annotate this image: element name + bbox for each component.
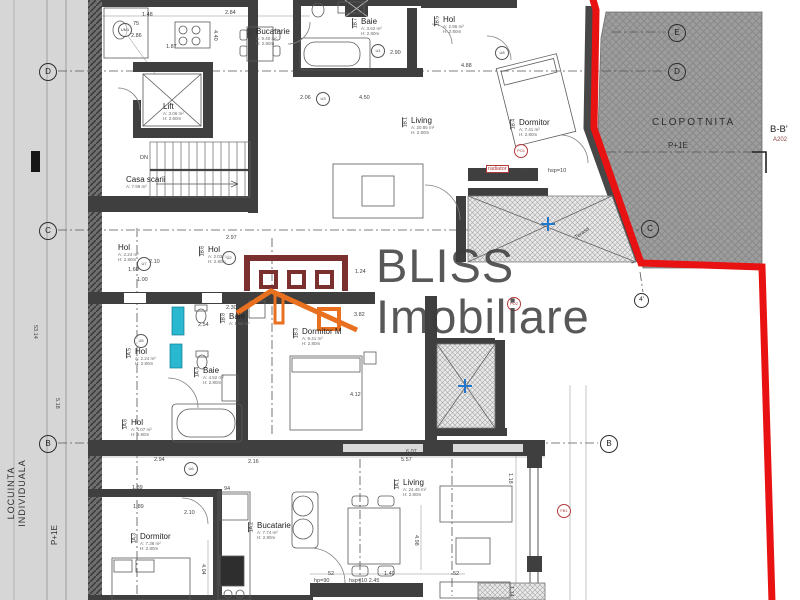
grid-marker: E: [668, 24, 686, 42]
left-zone-label: LOCUINTA INDIVIDUALA: [6, 418, 28, 568]
dimension-label: 4.40: [212, 30, 218, 41]
dimension-label: 2.97: [226, 235, 237, 241]
room-label: LiftA: 3.06 m²H: 2.60m: [163, 103, 184, 121]
reference-marker: U8: [495, 46, 509, 60]
dimension-label: 1.48: [142, 12, 153, 18]
grid-marker: D: [668, 63, 686, 81]
reference-marker: U5: [134, 334, 148, 348]
dimension-label: 2.86: [131, 33, 142, 39]
reference-marker: PO1: [514, 144, 528, 158]
reference-marker: U3: [316, 92, 330, 106]
dimension-label: +3.60: [126, 201, 140, 207]
grid-marker: 4': [634, 293, 649, 308]
section-sheet: A202: [773, 137, 787, 143]
dimension-label: 1.18: [507, 473, 513, 484]
room-label: 1B.2BucatarieA: 9.40 m²H: 2.80m: [247, 28, 290, 46]
room-label: Casa scariiA: 7.99 m²: [126, 176, 166, 189]
room-label: 1A.5HolA: 2.24 m²H: 2.80m: [126, 348, 156, 366]
room-label: 1B.3Dormitor MA: 9.41 m²H: 2.80m: [293, 328, 342, 346]
dimension-label: radiator: [486, 165, 509, 173]
dimension-label: 2.30: [226, 305, 237, 311]
dimension-label: 1.24: [355, 269, 366, 275]
dimension-label: 3.60: [361, 72, 372, 78]
dimension-label: 1.40: [384, 571, 395, 577]
room-label: 1A.4BaieA: 4.52 m²H: 2.80m: [194, 367, 224, 385]
dimension-label: 5.57: [401, 457, 412, 463]
grid-marker: B: [39, 435, 57, 453]
grid-marker: B: [600, 435, 618, 453]
watermark: BLISS Imobiliare: [376, 240, 590, 342]
dimension-label: 1.89: [132, 485, 143, 491]
dimension-label: 1.60: [128, 267, 139, 273]
dimension-label: 2.06: [300, 95, 311, 101]
dimension-label: 4.98: [413, 535, 419, 546]
room-label: HolA: 2.24 m²H: 2.80m: [118, 244, 139, 262]
watermark-line2: Imobiliare: [376, 291, 590, 342]
dimension-label: hsp=10: [548, 168, 566, 174]
grid-marker: C: [39, 222, 57, 240]
dimension-label: 75: [133, 21, 139, 27]
dimension-label: 1.59: [127, 449, 138, 455]
dimension-label: hp=90: [314, 578, 329, 584]
room-label: 1A.1LivingA: 24.45 m²H: 2.80m: [394, 479, 426, 497]
window-lines: [530, 468, 538, 600]
clopotnita-level: P+1E: [668, 141, 688, 150]
dimension-label: DN: [140, 155, 148, 161]
dimension-label: 2.10: [184, 510, 195, 516]
room-label: 1A.6HolA: 4.07 m²H: 2.80m: [122, 419, 152, 437]
room-label: 1B.5HolA: 2.96 m²H: 2.80m: [434, 16, 464, 34]
reference-marker: U2: [222, 251, 236, 265]
reference-marker: FB1: [557, 504, 571, 518]
dimension-label: 94: [224, 486, 230, 492]
dimension-label: 4.88: [461, 63, 472, 69]
watermark-line1: BLISS: [376, 240, 590, 291]
room-label: 1B.1LivingA: 20.85 m²H: 2.80m: [402, 117, 434, 135]
reference-marker: U1: [371, 44, 385, 58]
dimension-label: 52: [453, 571, 459, 577]
dimension-label: 2.90: [390, 50, 401, 56]
reference-marker: U6: [184, 462, 198, 476]
left-zone-level: P+1E: [50, 525, 59, 545]
dimension-label: 1.89: [133, 504, 144, 510]
reference-marker: U7: [137, 257, 151, 271]
clopotnita-label: CLOPOTNITA: [652, 117, 735, 128]
dimension-label: 2.16: [248, 459, 259, 465]
dimension-label: 2.94: [154, 457, 165, 463]
grid-marker: C: [641, 220, 659, 238]
dimension-label: 1.14: [508, 586, 514, 597]
section-label: B-B': [770, 124, 788, 135]
dimension-label: 4.50: [359, 95, 370, 101]
dimension-label: 1.00: [137, 277, 148, 283]
plumbing-fixtures: [170, 307, 184, 368]
room-label: 1B.4DormitorA: 7.41 m²H: 2.80m: [510, 119, 550, 137]
dimension-label: hsp=10 2.45: [349, 578, 379, 584]
room-label: 1B.8BaieA: 1.92 m²: [220, 313, 250, 326]
dimension-label: 2.76: [353, 298, 364, 304]
floor-plan: BLISS Imobiliare LOCUINTA INDIVIDUALA P+…: [0, 0, 800, 600]
reference-marker: UM1: [118, 23, 132, 37]
dimension-label: 5.18: [54, 398, 60, 409]
dimension-label: 3.82: [354, 312, 365, 318]
terrace-mid: [437, 344, 495, 428]
dimension-label: 2.54: [198, 322, 209, 328]
dimension-label: 4.12: [350, 392, 361, 398]
dimension-label: 1.87: [166, 44, 177, 50]
room-label: 1A.3DormitorA: 7.38 m²H: 2.80m: [131, 533, 171, 551]
dimension-label: 53.14: [32, 325, 38, 339]
grid-marker: D: [39, 63, 57, 81]
room-label: 1B.7BaieA: 3.62 m²H: 2.80m: [352, 18, 382, 36]
dimension-label: 4.04: [200, 564, 206, 575]
dimension-label: 2.84: [225, 10, 236, 16]
room-label: 1A.2BucatarieA: 7.74 m²H: 2.80m: [248, 522, 291, 540]
dimension-label: 52: [328, 571, 334, 577]
dimension-label: 6.07: [406, 449, 417, 455]
dimension-label: hp=90: [514, 168, 529, 174]
